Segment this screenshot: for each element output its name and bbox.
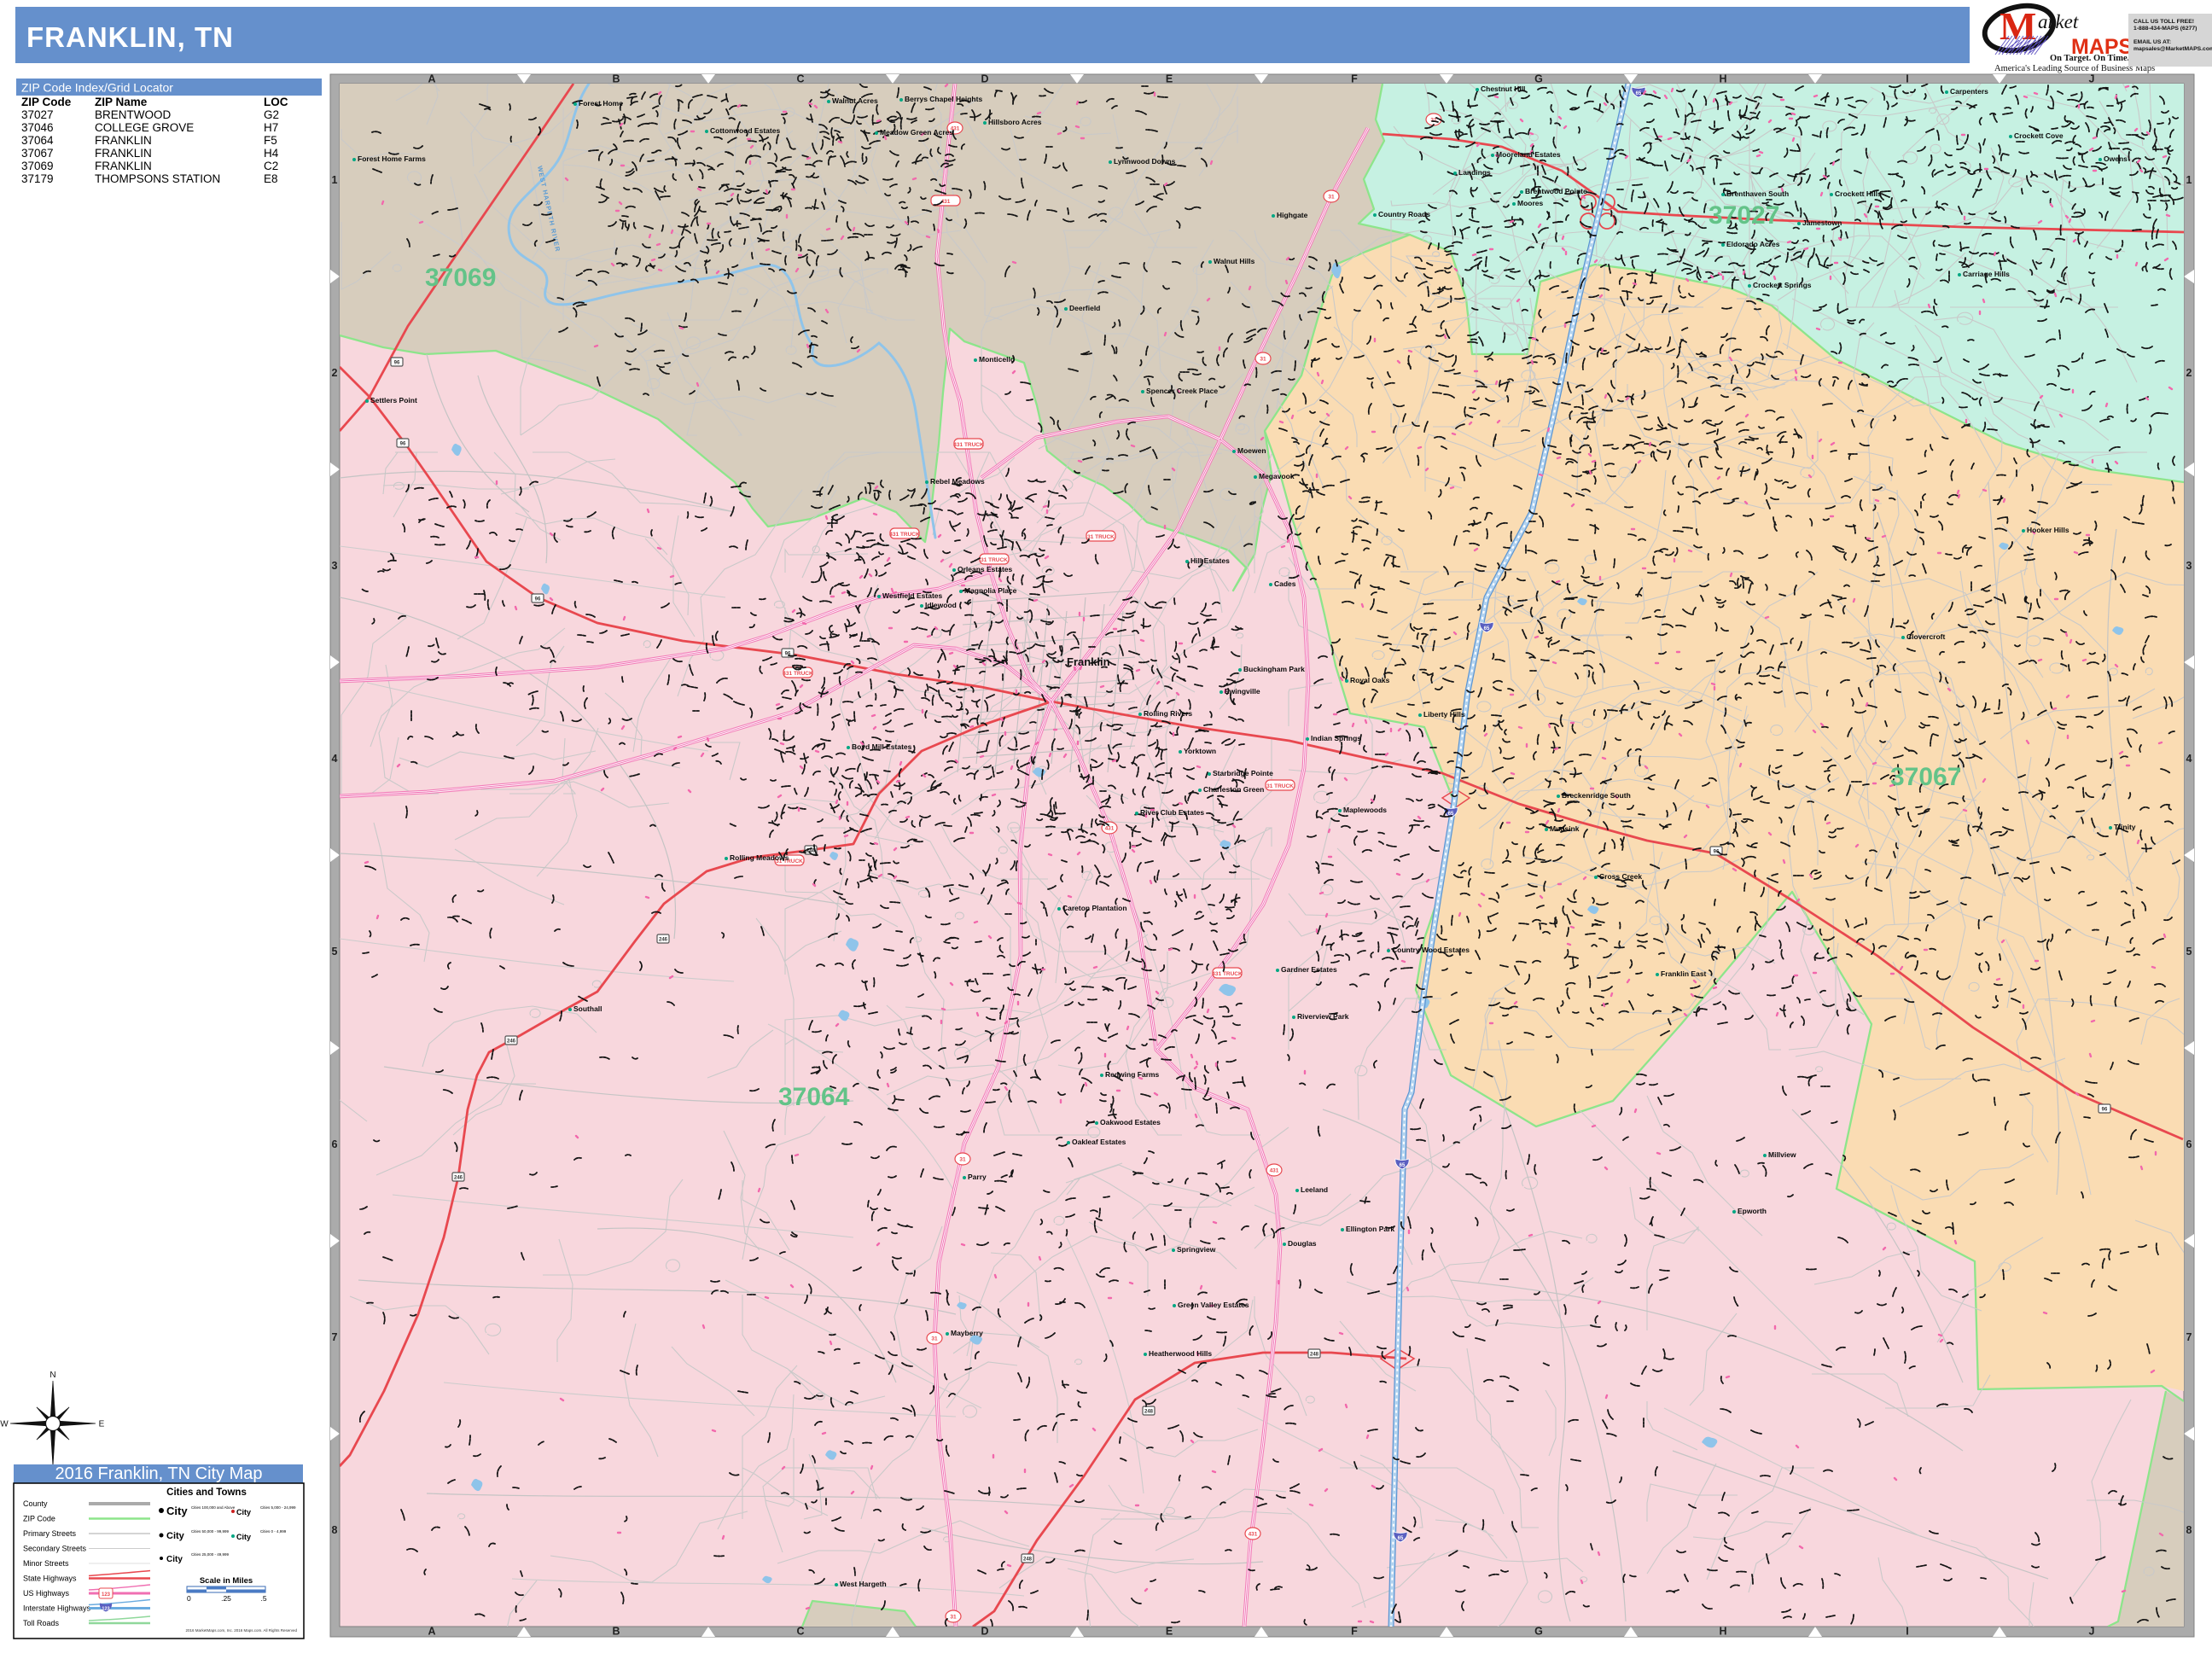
svg-text:Yorktown: Yorktown xyxy=(1184,747,1216,755)
svg-text:I: I xyxy=(1906,1626,1908,1638)
svg-text:4: 4 xyxy=(2186,753,2192,765)
svg-text:W: W xyxy=(0,1420,9,1429)
svg-text:County: County xyxy=(23,1499,48,1508)
svg-text:96: 96 xyxy=(535,597,541,602)
svg-text:ZIP Name: ZIP Name xyxy=(95,96,148,108)
svg-text:Meadow Green Acres: Meadow Green Acres xyxy=(880,128,953,137)
svg-text:Eldorado Acres: Eldorado Acres xyxy=(1726,240,1780,248)
svg-text:Rebel Meadows: Rebel Meadows xyxy=(930,477,985,486)
svg-text:Liberty Hills: Liberty Hills xyxy=(1423,710,1465,719)
svg-text:J: J xyxy=(2089,1626,2095,1638)
svg-text:431 TRUCK: 431 TRUCK xyxy=(1212,971,1243,977)
svg-text:31: 31 xyxy=(1328,195,1335,201)
svg-text:Toll Roads: Toll Roads xyxy=(23,1619,60,1627)
svg-text:Springview: Springview xyxy=(1177,1245,1216,1254)
svg-text:Royal Oaks: Royal Oaks xyxy=(1350,676,1390,684)
svg-text:123: 123 xyxy=(102,1592,111,1598)
svg-text:Landings: Landings xyxy=(1458,168,1491,177)
svg-text:C2: C2 xyxy=(264,160,278,172)
svg-text:Starbridge Pointe: Starbridge Pointe xyxy=(1213,769,1273,777)
svg-text:G: G xyxy=(1534,1626,1543,1638)
svg-text:Brentwood Pointe: Brentwood Pointe xyxy=(1525,187,1587,195)
svg-text:C: C xyxy=(796,73,804,85)
svg-text:N: N xyxy=(49,1371,55,1380)
svg-text:37064: 37064 xyxy=(778,1083,850,1111)
svg-text:Carpenters: Carpenters xyxy=(1950,87,1988,96)
svg-text:96: 96 xyxy=(394,361,400,366)
svg-text:Douglas: Douglas xyxy=(1288,1239,1317,1248)
svg-text:8: 8 xyxy=(2186,1524,2192,1536)
svg-text:31 TRUCK: 31 TRUCK xyxy=(1087,534,1115,540)
svg-text:G2: G2 xyxy=(264,108,279,121)
svg-text:Redwing Farms: Redwing Farms xyxy=(1105,1070,1160,1079)
svg-text:Jamestown: Jamestown xyxy=(1802,218,1842,227)
svg-text:246: 246 xyxy=(454,1176,463,1181)
svg-text:D: D xyxy=(981,1626,988,1638)
svg-text:Minor Streets: Minor Streets xyxy=(23,1559,69,1568)
svg-text:431 TRUCK: 431 TRUCK xyxy=(889,532,920,538)
svg-text:City: City xyxy=(236,1508,251,1516)
svg-text:2: 2 xyxy=(2186,367,2192,379)
svg-text:1-888-434-MAPS (6277): 1-888-434-MAPS (6277) xyxy=(2133,26,2197,32)
svg-text:arket: arket xyxy=(2038,11,2079,32)
svg-text:THOMPSONS STATION: THOMPSONS STATION xyxy=(95,172,220,185)
svg-text:Trinity: Trinity xyxy=(2114,823,2136,831)
svg-text:Mooreland Estates: Mooreland Estates xyxy=(1496,150,1561,159)
svg-text:Epworth: Epworth xyxy=(1738,1207,1767,1215)
svg-text:Cities 0 - 4,999: Cities 0 - 4,999 xyxy=(260,1529,287,1534)
svg-text:A: A xyxy=(428,1626,435,1638)
svg-text:Moores: Moores xyxy=(1517,199,1544,207)
svg-text:Cities and Towns: Cities and Towns xyxy=(166,1487,247,1498)
svg-text:Clovercroft: Clovercroft xyxy=(1906,632,1946,641)
svg-text:.5: .5 xyxy=(260,1594,266,1603)
svg-text:Riverview Park: Riverview Park xyxy=(1297,1012,1349,1021)
svg-text:B: B xyxy=(612,1626,620,1638)
svg-text:Spencer Creek Place: Spencer Creek Place xyxy=(1146,387,1218,395)
svg-text:FRANKLIN: FRANKLIN xyxy=(95,147,152,160)
svg-text:Green Valley Estates: Green Valley Estates xyxy=(1178,1301,1249,1309)
svg-text:37179: 37179 xyxy=(21,172,54,185)
svg-text:F: F xyxy=(1351,73,1358,85)
svg-text:Forest Home Farms: Forest Home Farms xyxy=(358,154,426,163)
svg-text:H7: H7 xyxy=(264,121,278,134)
svg-text:37046: 37046 xyxy=(21,121,54,134)
svg-text:2016 MarketMaps.com, Inc. 2016: 2016 MarketMaps.com, Inc. 2016 Maps.com.… xyxy=(185,1628,297,1633)
svg-text:FRANKLIN, TN: FRANKLIN, TN xyxy=(26,21,234,53)
svg-text:J: J xyxy=(2089,73,2095,85)
svg-text:Magnolia Place: Magnolia Place xyxy=(964,586,1017,595)
svg-text:Oakwood Estates: Oakwood Estates xyxy=(1100,1118,1161,1126)
svg-text:37067: 37067 xyxy=(21,147,54,160)
svg-text:Highgate: Highgate xyxy=(1277,211,1308,219)
svg-text:Cities 25,000 - 49,999: Cities 25,000 - 49,999 xyxy=(191,1552,230,1557)
svg-text:3: 3 xyxy=(2186,560,2192,572)
svg-text:Crockett Hills: Crockett Hills xyxy=(1835,189,1882,198)
svg-text:1: 1 xyxy=(2186,174,2192,186)
svg-text:Cities 50,000 - 99,999: Cities 50,000 - 99,999 xyxy=(191,1529,230,1534)
svg-text:Careton Plantation: Careton Plantation xyxy=(1062,904,1127,912)
svg-text:4: 4 xyxy=(332,753,338,765)
svg-text:Millview: Millview xyxy=(1768,1150,1796,1159)
svg-text:ZIP Code: ZIP Code xyxy=(23,1515,55,1523)
svg-text:Ewingville: Ewingville xyxy=(1225,687,1260,696)
svg-text:Leeland: Leeland xyxy=(1301,1185,1328,1194)
svg-text:Country Wood Estates: Country Wood Estates xyxy=(1392,946,1470,954)
svg-text:Carriage Hills: Carriage Hills xyxy=(1963,270,2010,278)
svg-text:Cities 5,000 - 24,999: Cities 5,000 - 24,999 xyxy=(260,1505,296,1510)
svg-text:mapsales@MarketMAPS.com: mapsales@MarketMAPS.com xyxy=(2133,46,2212,52)
svg-text:Interstate Highways: Interstate Highways xyxy=(23,1604,91,1613)
svg-text:248: 248 xyxy=(1310,1353,1319,1358)
svg-text:Franklin East: Franklin East xyxy=(1661,969,1707,978)
svg-text:31 TRUCK: 31 TRUCK xyxy=(981,557,1008,563)
svg-text:Hillsboro Acres: Hillsboro Acres xyxy=(988,118,1042,126)
svg-text:96: 96 xyxy=(400,442,406,447)
svg-text:F5: F5 xyxy=(264,134,277,147)
svg-text:123: 123 xyxy=(102,1607,109,1612)
svg-text:I: I xyxy=(1906,73,1908,85)
svg-text:Monticello: Monticello xyxy=(979,355,1015,364)
svg-text:City: City xyxy=(236,1533,251,1541)
svg-text:6: 6 xyxy=(332,1138,338,1150)
svg-text:On Target. On Time.: On Target. On Time. xyxy=(2050,54,2130,63)
svg-text:37027: 37027 xyxy=(1708,201,1779,230)
svg-text:EMAIL US AT:: EMAIL US AT: xyxy=(2133,39,2171,45)
svg-text:Settlers Point: Settlers Point xyxy=(370,396,417,405)
svg-text:431: 431 xyxy=(1270,1168,1279,1174)
svg-text:37069: 37069 xyxy=(21,160,54,172)
svg-text:Secondary Streets: Secondary Streets xyxy=(23,1545,87,1553)
svg-text:37069: 37069 xyxy=(425,264,496,292)
svg-text:Walnut Acres: Walnut Acres xyxy=(832,96,878,105)
svg-text:Chestnut Hill: Chestnut Hill xyxy=(1481,84,1525,93)
svg-text:248: 248 xyxy=(1023,1557,1033,1563)
svg-text:Ellington Park: Ellington Park xyxy=(1346,1225,1394,1233)
svg-text:0: 0 xyxy=(187,1594,191,1603)
svg-text:Idlewood: Idlewood xyxy=(925,601,957,609)
svg-text:West Hargeth: West Hargeth xyxy=(840,1580,887,1588)
svg-text:Moewen: Moewen xyxy=(1237,446,1266,455)
svg-text:246: 246 xyxy=(659,938,668,943)
svg-text:Oakleaf Estates: Oakleaf Estates xyxy=(1072,1138,1126,1146)
svg-text:65: 65 xyxy=(1398,1536,1404,1541)
svg-text:Crockett Springs: Crockett Springs xyxy=(1753,281,1812,289)
svg-text:248: 248 xyxy=(1144,1410,1154,1415)
svg-text:96: 96 xyxy=(2102,1108,2108,1113)
svg-text:Owens: Owens xyxy=(2104,154,2128,163)
svg-text:LOC: LOC xyxy=(264,96,288,108)
svg-text:Mayberry: Mayberry xyxy=(951,1329,983,1337)
svg-text:H4: H4 xyxy=(264,147,279,160)
svg-text:FRANKLIN: FRANKLIN xyxy=(95,134,152,147)
svg-text:Rolling Meadows: Rolling Meadows xyxy=(730,853,789,862)
svg-text:431 TRUCK: 431 TRUCK xyxy=(783,671,813,677)
svg-text:Primary Streets: Primary Streets xyxy=(23,1529,77,1538)
svg-text:Lynnwood Downs: Lynnwood Downs xyxy=(1114,157,1176,166)
svg-text:65: 65 xyxy=(1400,1163,1406,1168)
svg-text:65: 65 xyxy=(1484,626,1490,632)
svg-text:F: F xyxy=(1351,1626,1358,1638)
svg-text:8: 8 xyxy=(332,1524,338,1536)
svg-text:COLLEGE GROVE: COLLEGE GROVE xyxy=(95,121,194,134)
svg-text:6: 6 xyxy=(2186,1138,2192,1150)
svg-text:Gardner Estates: Gardner Estates xyxy=(1281,965,1337,974)
svg-text:River Club Estates: River Club Estates xyxy=(1140,808,1204,817)
svg-text:Cottonwood Estates: Cottonwood Estates xyxy=(710,126,780,135)
svg-text:431: 431 xyxy=(1105,826,1115,832)
svg-text:Southall: Southall xyxy=(573,1004,602,1013)
svg-text:E: E xyxy=(1166,73,1173,85)
svg-text:ZIP Code Index/Grid Locator: ZIP Code Index/Grid Locator xyxy=(21,81,173,95)
svg-text:Crockett Cove: Crockett Cove xyxy=(2014,131,2064,140)
svg-text:31: 31 xyxy=(1260,357,1266,363)
svg-text:Parry: Parry xyxy=(968,1173,987,1181)
svg-text:C: C xyxy=(796,1626,804,1638)
svg-text:431 TRUCK: 431 TRUCK xyxy=(953,442,984,448)
svg-text:31: 31 xyxy=(950,1615,957,1621)
svg-text:FRANKLIN: FRANKLIN xyxy=(95,160,152,172)
svg-text:7: 7 xyxy=(2186,1331,2192,1343)
svg-text:E8: E8 xyxy=(264,172,278,185)
svg-text:7: 7 xyxy=(332,1331,338,1343)
svg-text:BRENTWOOD: BRENTWOOD xyxy=(95,108,171,121)
svg-text:Orleans Estates: Orleans Estates xyxy=(958,565,1013,573)
svg-text:Franklin: Franklin xyxy=(1067,655,1110,668)
svg-text:Buckingham Park: Buckingham Park xyxy=(1243,665,1305,673)
svg-text:Boyd Mill Estates: Boyd Mill Estates xyxy=(852,742,912,751)
svg-text:Cades: Cades xyxy=(1274,579,1296,588)
svg-text:1: 1 xyxy=(332,174,338,186)
svg-text:Breckenridge South: Breckenridge South xyxy=(1562,791,1631,800)
svg-text:Hooker Hills: Hooker Hills xyxy=(2027,526,2069,534)
svg-text:246: 246 xyxy=(507,1039,516,1045)
svg-text:City: City xyxy=(166,1555,183,1564)
svg-text:5: 5 xyxy=(332,946,338,958)
svg-text:Cities 100,000 and Above: Cities 100,000 and Above xyxy=(191,1505,236,1510)
svg-text:H: H xyxy=(1719,1626,1726,1638)
svg-text:31: 31 xyxy=(931,1336,938,1342)
svg-text:65: 65 xyxy=(1636,91,1642,96)
svg-text:431: 431 xyxy=(1249,1532,1258,1538)
svg-text:G: G xyxy=(1534,73,1543,85)
svg-text:ZIP Code: ZIP Code xyxy=(21,96,72,108)
svg-text:Westfield Estates: Westfield Estates xyxy=(882,591,943,600)
svg-text:Hill Estates: Hill Estates xyxy=(1190,556,1230,565)
svg-text:31: 31 xyxy=(959,1157,966,1163)
svg-text:E: E xyxy=(1166,1626,1173,1638)
svg-text:.25: .25 xyxy=(221,1594,231,1603)
svg-text:Brenthaven South: Brenthaven South xyxy=(1726,189,1789,198)
svg-text:D: D xyxy=(981,73,988,85)
svg-text:Scale in Miles: Scale in Miles xyxy=(200,1576,253,1586)
svg-text:B: B xyxy=(612,73,620,85)
svg-text:Deerfield: Deerfield xyxy=(1069,304,1100,312)
svg-text:State Highways: State Highways xyxy=(23,1575,77,1583)
svg-text:5: 5 xyxy=(2186,946,2192,958)
svg-text:2: 2 xyxy=(332,367,338,379)
svg-text:Mudsink: Mudsink xyxy=(1550,824,1580,833)
svg-text:City: City xyxy=(166,1505,188,1517)
svg-text:Indian Springs: Indian Springs xyxy=(1311,734,1361,742)
svg-text:A: A xyxy=(428,73,435,85)
svg-text:H: H xyxy=(1719,73,1726,85)
svg-text:Cross Creek: Cross Creek xyxy=(1599,872,1642,881)
svg-text:Maplewoods: Maplewoods xyxy=(1343,806,1387,814)
svg-text:31 TRUCK: 31 TRUCK xyxy=(1266,783,1294,789)
svg-text:City: City xyxy=(166,1531,185,1541)
svg-text:Heatherwood Hills: Heatherwood Hills xyxy=(1149,1349,1212,1358)
svg-text:Forest Home: Forest Home xyxy=(579,99,623,108)
svg-text:E: E xyxy=(99,1420,105,1429)
svg-text:37064: 37064 xyxy=(21,134,54,147)
svg-text:Berrys Chapel Heights: Berrys Chapel Heights xyxy=(905,95,982,103)
svg-text:37067: 37067 xyxy=(1890,763,1961,791)
svg-text:Country Roads: Country Roads xyxy=(1378,210,1430,218)
svg-text:Megavook: Megavook xyxy=(1259,472,1295,480)
svg-text:37027: 37027 xyxy=(21,108,54,121)
svg-text:3: 3 xyxy=(332,560,338,572)
svg-text:Rolling Rivers: Rolling Rivers xyxy=(1144,709,1192,718)
svg-text:CALL US TOLL FREE!: CALL US TOLL FREE! xyxy=(2133,19,2194,25)
svg-text:US Highways: US Highways xyxy=(23,1589,70,1598)
svg-text:Charleston Green: Charleston Green xyxy=(1203,785,1264,794)
svg-text:2016 Franklin, TN City Map: 2016 Franklin, TN City Map xyxy=(55,1464,262,1483)
svg-text:Walnut Hills: Walnut Hills xyxy=(1214,257,1255,265)
